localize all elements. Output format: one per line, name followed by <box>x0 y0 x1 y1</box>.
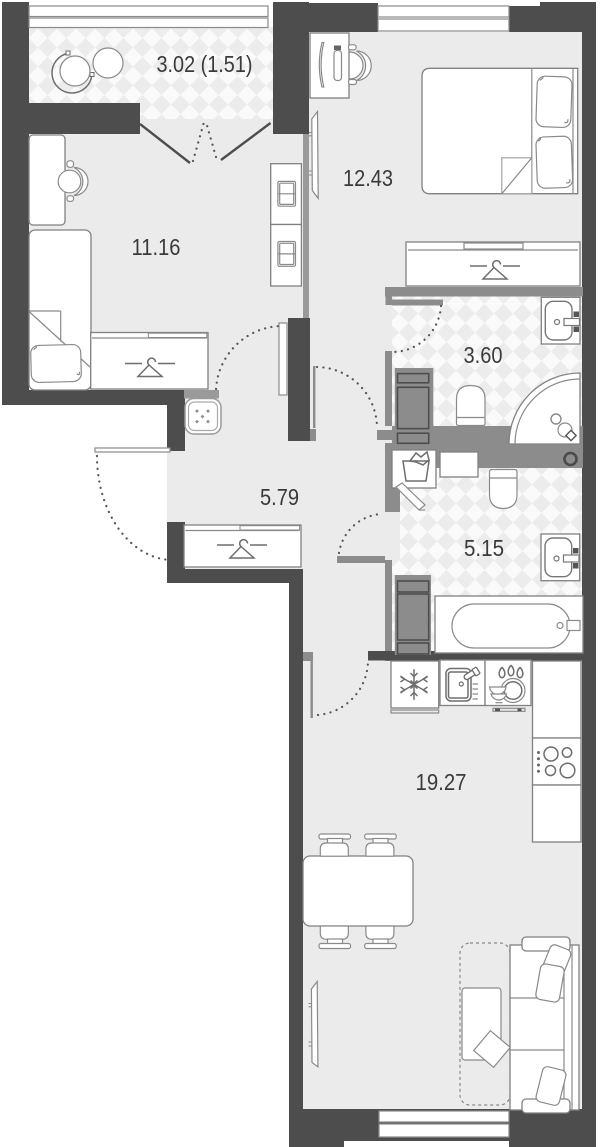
svg-text:19.27: 19.27 <box>416 769 467 795</box>
svg-text:3.02 (1.51): 3.02 (1.51) <box>157 51 253 77</box>
svg-text:3.60: 3.60 <box>464 342 503 368</box>
svg-text:5.79: 5.79 <box>260 484 299 510</box>
svg-text:11.16: 11.16 <box>132 234 181 260</box>
svg-text:12.43: 12.43 <box>343 165 393 191</box>
svg-text:5.15: 5.15 <box>464 535 504 561</box>
